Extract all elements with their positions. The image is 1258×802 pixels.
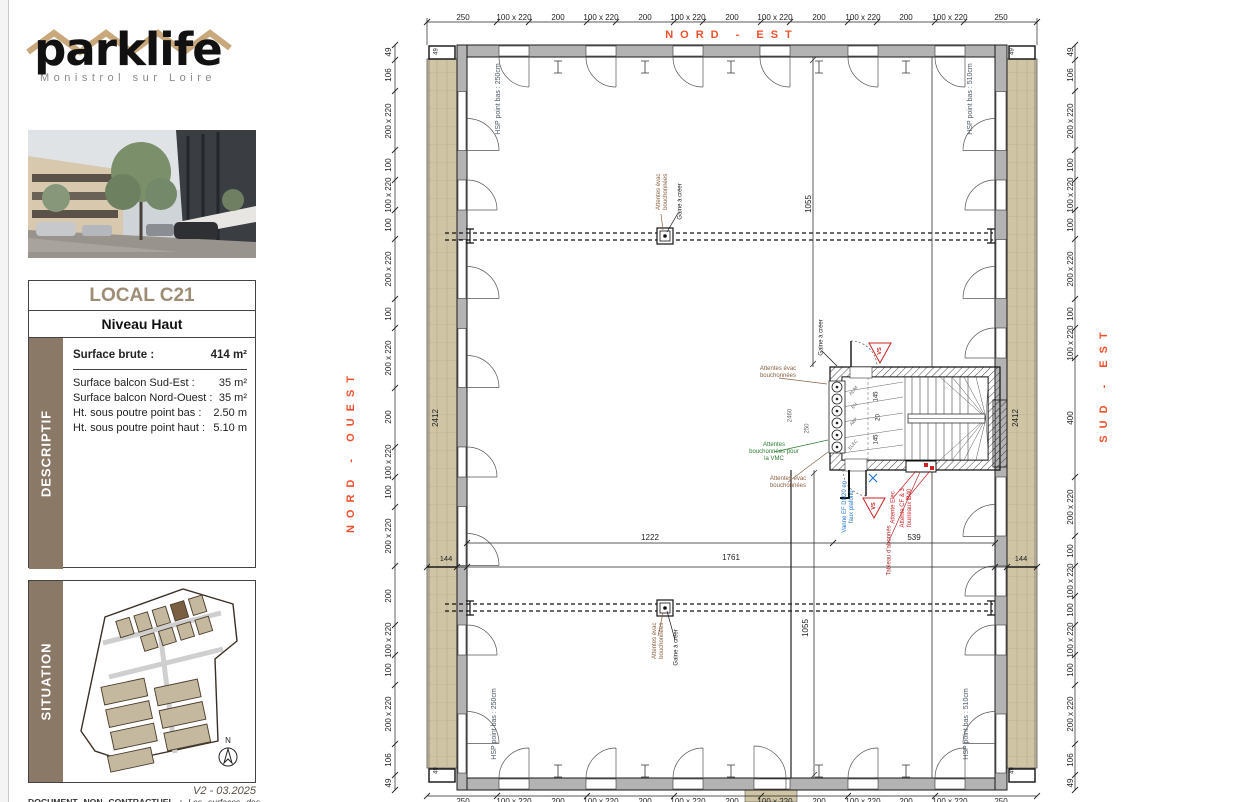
- corner-49: 49: [433, 42, 442, 62]
- dimension-label: 200 x 220: [384, 338, 394, 378]
- dimension-label: 106: [384, 55, 394, 95]
- dimension-label: 250: [971, 13, 1031, 22]
- corner-49: 49: [433, 761, 442, 781]
- dimension-label: 100: [1066, 205, 1076, 245]
- direction-sud-est: SUD - EST: [1098, 254, 1110, 514]
- hsp-label: HSP point bas : 510cm: [966, 44, 976, 154]
- corner-49: 49: [1009, 761, 1018, 781]
- dimension-20: 20: [875, 408, 884, 428]
- annotation-vmc: Attentes bouchonnées pour la VMC: [748, 442, 800, 462]
- dimension-145: 145: [873, 430, 882, 450]
- dimension-label: 106: [1066, 55, 1076, 95]
- dimension-144: 144: [1009, 554, 1033, 563]
- annotation-attentes-evac: Attentes évac bouchonnées: [762, 476, 814, 490]
- dimension-label: 200 x 220: [1066, 101, 1076, 141]
- dimension-label: 200 x 220: [1066, 249, 1076, 289]
- dimension-250: 250: [804, 419, 813, 439]
- dimension-label: 100: [384, 205, 394, 245]
- dimension-1761: 1761: [701, 553, 761, 562]
- dimension-1222: 1222: [620, 533, 680, 542]
- annotation-vanne: Vanne EF DN20 en faux plafond: [842, 478, 856, 536]
- annotation-tableau: Tableau d'abonnés: [887, 514, 894, 586]
- hsp-label: HSP point bas : 250cm: [494, 44, 504, 154]
- corner-49: 49: [1009, 42, 1018, 62]
- dimension-label: 200 x 220: [384, 694, 394, 734]
- dimension-2412: 2412: [431, 398, 441, 438]
- dimension-label: 200 x 220: [384, 101, 394, 141]
- dimension-2412: 2412: [1011, 398, 1021, 438]
- plan-sheet: parklife Monistrol sur Loire: [0, 0, 1258, 802]
- hsp-label: HSP point bas : 250cm: [490, 669, 500, 779]
- dimension-label: 200 x 220: [1066, 487, 1076, 527]
- dimension-label: 200 x 220: [384, 516, 394, 556]
- dimension-label: 200: [384, 397, 394, 437]
- dimension-label: 250: [971, 797, 1031, 802]
- dimension-2460: 2460: [787, 406, 796, 426]
- dimension-145: 145: [873, 387, 882, 407]
- vs-label: VS: [877, 344, 883, 358]
- dimension-label: 200 x 220: [384, 249, 394, 289]
- direction-nord-ouest: NORD - OUEST: [345, 321, 357, 581]
- dimension-label: 200: [384, 576, 394, 616]
- direction-nord-est: NORD - EST: [597, 29, 867, 41]
- annotation-attentes-evac: Attentes évac bouchonnées: [652, 618, 666, 664]
- dimension-1055: 1055: [804, 184, 814, 224]
- dimension-1055: 1055: [801, 608, 811, 648]
- floor-plan: NORD - EST NORD - OUEST SUD - EST 250 10…: [0, 0, 1258, 802]
- dimension-label: 200 x 220: [1066, 694, 1076, 734]
- dimension-label: 100: [384, 294, 394, 334]
- dimension-144: 144: [434, 554, 458, 563]
- annotation-attentes-evac: Attentes évac bouchonnées: [656, 169, 670, 215]
- dimension-label: 100: [384, 472, 394, 512]
- annotation-gaine: Gaine à créer: [674, 625, 681, 669]
- dimension-label: 100: [1066, 650, 1076, 690]
- dimension-label: 49: [384, 763, 394, 802]
- dimension-label: 49: [1066, 763, 1076, 802]
- annotation-gaine: Gaine à créer: [819, 315, 826, 359]
- annotation-attentes-evac: Attentes évac bouchonnées: [752, 366, 804, 380]
- hsp-label: HSP point bas : 510cm: [962, 669, 972, 779]
- annotation-gaine: Gaine à créer: [678, 179, 685, 223]
- gaine-symbol: [657, 228, 673, 616]
- annotation-attente-cf: Attente CF & 3 fourreaux Ø40: [900, 479, 914, 537]
- dimension-label: 100 x 220: [1066, 323, 1076, 363]
- dimension-label: 400: [1066, 398, 1076, 438]
- vs-label: VS: [871, 499, 877, 513]
- dimension-label: 100: [384, 650, 394, 690]
